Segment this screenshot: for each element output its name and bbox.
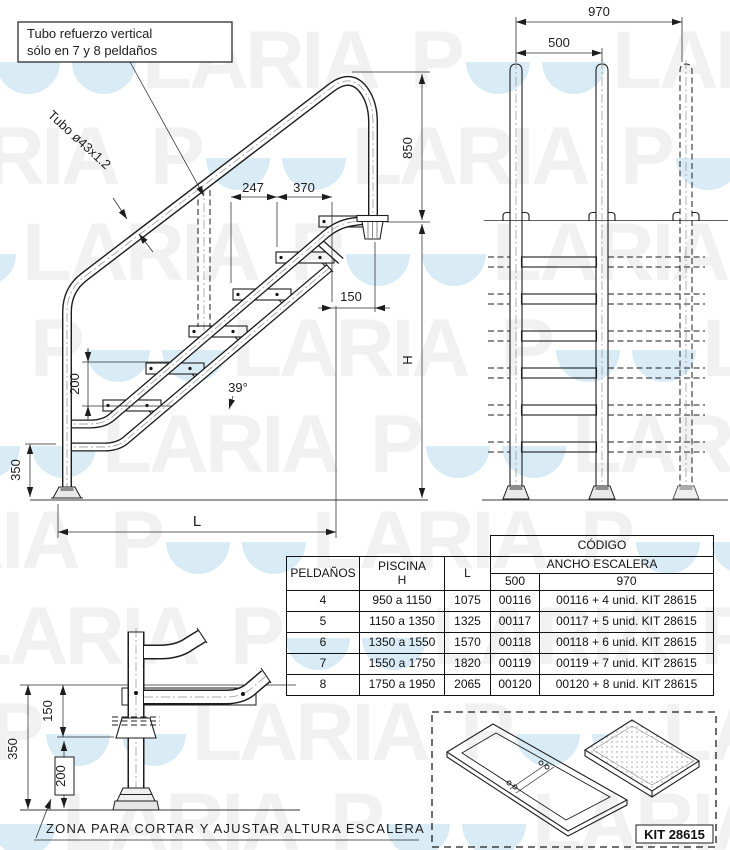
table-row: 8 1750 a 1950 2065 00120 00120 + 8 unid.… bbox=[287, 675, 714, 696]
dimension-350-detail: 350 bbox=[5, 685, 28, 809]
pool-ladder-technical-sheet: { "note_box": { "line1": "Tubo refuerzo … bbox=[0, 0, 730, 850]
cell-peldanos: 7 bbox=[287, 654, 360, 675]
cell-codigo-500: 00120 bbox=[491, 675, 540, 696]
kit-label: KIT 28615 bbox=[636, 825, 713, 843]
cell-peldanos: 4 bbox=[287, 591, 360, 612]
cell-piscina: 1550 a 1750 bbox=[360, 654, 445, 675]
table-row: 6 1350 a 1550 1570 00118 00118 + 6 unid.… bbox=[287, 633, 714, 654]
dim-label-39: 39° bbox=[228, 380, 248, 395]
cell-l: 1570 bbox=[445, 633, 491, 654]
tube-spec-text: Tubo ø43x1.2 bbox=[45, 107, 114, 172]
cell-l: 1325 bbox=[445, 612, 491, 633]
cell-codigo-970: 00117 + 5 unid. KIT 28615 bbox=[540, 612, 714, 633]
dim-label-L: L bbox=[193, 513, 201, 530]
cell-piscina: 1150 a 1350 bbox=[360, 612, 445, 633]
cell-codigo-500: 00117 bbox=[491, 612, 540, 633]
detail-foot bbox=[113, 788, 159, 810]
dimension-500: 500 bbox=[516, 35, 602, 62]
cell-codigo-500: 00116 bbox=[491, 591, 540, 612]
handrail-tube bbox=[67, 81, 373, 492]
dim-label-350-side: 350 bbox=[8, 459, 23, 481]
table-row: 5 1150 a 1350 1325 00117 00117 + 5 unid.… bbox=[287, 612, 714, 633]
cell-codigo-970: 00116 + 4 unid. KIT 28615 bbox=[540, 591, 714, 612]
detail-anchor-cone bbox=[112, 717, 160, 738]
cell-codigo-500: 00118 bbox=[491, 633, 540, 654]
cell-codigo-970: 00118 + 6 unid. KIT 28615 bbox=[540, 633, 714, 654]
dim-label-150-side: 150 bbox=[340, 289, 362, 304]
dimension-150-detail: 150 bbox=[40, 685, 114, 737]
dim-label-247: 247 bbox=[242, 180, 264, 195]
kit-label-text: KIT 28615 bbox=[644, 827, 705, 842]
cut-zone-text: ZONA PARA CORTAR Y AJUSTAR ALTURA ESCALE… bbox=[46, 821, 425, 836]
cut-zone-note: ZONA PARA CORTAR Y AJUSTAR ALTURA ESCALE… bbox=[34, 821, 425, 840]
front-tube-right-hidden bbox=[680, 60, 692, 497]
cell-peldanos: 6 bbox=[287, 633, 360, 654]
cell-codigo-970: 00119 + 7 unid. KIT 28615 bbox=[540, 654, 714, 675]
detail-lower-tube bbox=[134, 668, 271, 697]
detail-upper-tube bbox=[144, 628, 207, 652]
dim-label-200-detail: 200 bbox=[53, 765, 68, 787]
front-tube-middle bbox=[596, 60, 608, 497]
note-line-1: Tubo refuerzo vertical bbox=[27, 26, 152, 41]
table-header-piscina-line1: PISCINA bbox=[360, 560, 444, 574]
dim-label-350-detail: 350 bbox=[5, 738, 20, 760]
rear-post-foot bbox=[51, 487, 83, 498]
dim-label-850: 850 bbox=[400, 137, 415, 159]
cell-piscina: 950 a 1150 bbox=[360, 591, 445, 612]
cell-codigo-970: 00120 + 8 unid. KIT 28615 bbox=[540, 675, 714, 696]
note-box: Tubo refuerzo vertical sólo en 7 y 8 pel… bbox=[18, 22, 232, 196]
technical-drawing: Tubo refuerzo vertical sólo en 7 y 8 pel… bbox=[0, 0, 730, 850]
dim-label-370: 370 bbox=[293, 180, 315, 195]
front-feet bbox=[503, 486, 699, 499]
cell-l: 1820 bbox=[445, 654, 491, 675]
table-row: 7 1550 a 1750 1820 00119 00119 + 7 unid.… bbox=[287, 654, 714, 675]
table-row: 4 950 a 1150 1075 00116 00116 + 4 unid. … bbox=[287, 591, 714, 612]
dim-label-500: 500 bbox=[548, 35, 570, 50]
cell-codigo-500: 00119 bbox=[491, 654, 540, 675]
dim-label-150-detail: 150 bbox=[40, 700, 55, 722]
front-view: 970 500 bbox=[482, 4, 728, 500]
detail-post-tube bbox=[128, 628, 145, 800]
dimension-angle-39: 39° bbox=[228, 380, 248, 409]
cell-l: 1075 bbox=[445, 591, 491, 612]
table-header-l: L bbox=[445, 557, 491, 591]
dimension-850-H: 850 H bbox=[400, 74, 422, 498]
spec-table: CÓDIGO PELDAÑOS PISCINA H L ANCHO ESCALE… bbox=[286, 535, 714, 696]
dimension-350-side: 350 bbox=[8, 444, 56, 497]
reinforcement-tube-dashed bbox=[198, 186, 210, 331]
cell-l: 2065 bbox=[445, 675, 491, 696]
cell-peldanos: 5 bbox=[287, 612, 360, 633]
table-header-ancho: ANCHO ESCALERA bbox=[491, 557, 714, 574]
table-header-piscina: PISCINA H bbox=[360, 557, 445, 591]
dim-label-H: H bbox=[400, 355, 415, 364]
kit-box: KIT 28615 bbox=[432, 712, 716, 847]
dim-label-200-side: 200 bbox=[67, 373, 82, 395]
front-tube-left bbox=[510, 60, 522, 497]
front-deck-anchors bbox=[503, 213, 699, 222]
dim-label-970: 970 bbox=[588, 4, 610, 19]
table-header-codigo: CÓDIGO bbox=[491, 536, 714, 557]
table-header-970: 970 bbox=[540, 574, 714, 591]
cell-piscina: 1350 a 1550 bbox=[360, 633, 445, 654]
tube-spec-label: Tubo ø43x1.2 bbox=[45, 107, 153, 252]
cell-peldanos: 8 bbox=[287, 675, 360, 696]
table-header-piscina-line2: H bbox=[360, 574, 444, 588]
side-view: Tubo refuerzo vertical sólo en 7 y 8 pel… bbox=[8, 22, 430, 538]
table-header-500: 500 bbox=[491, 574, 540, 591]
cell-piscina: 1750 a 1950 bbox=[360, 675, 445, 696]
upper-stringer-tube bbox=[62, 220, 366, 424]
note-line-2: sólo en 7 y 8 peldaños bbox=[27, 43, 158, 58]
table-header-peldanos: PELDAÑOS bbox=[287, 557, 360, 591]
